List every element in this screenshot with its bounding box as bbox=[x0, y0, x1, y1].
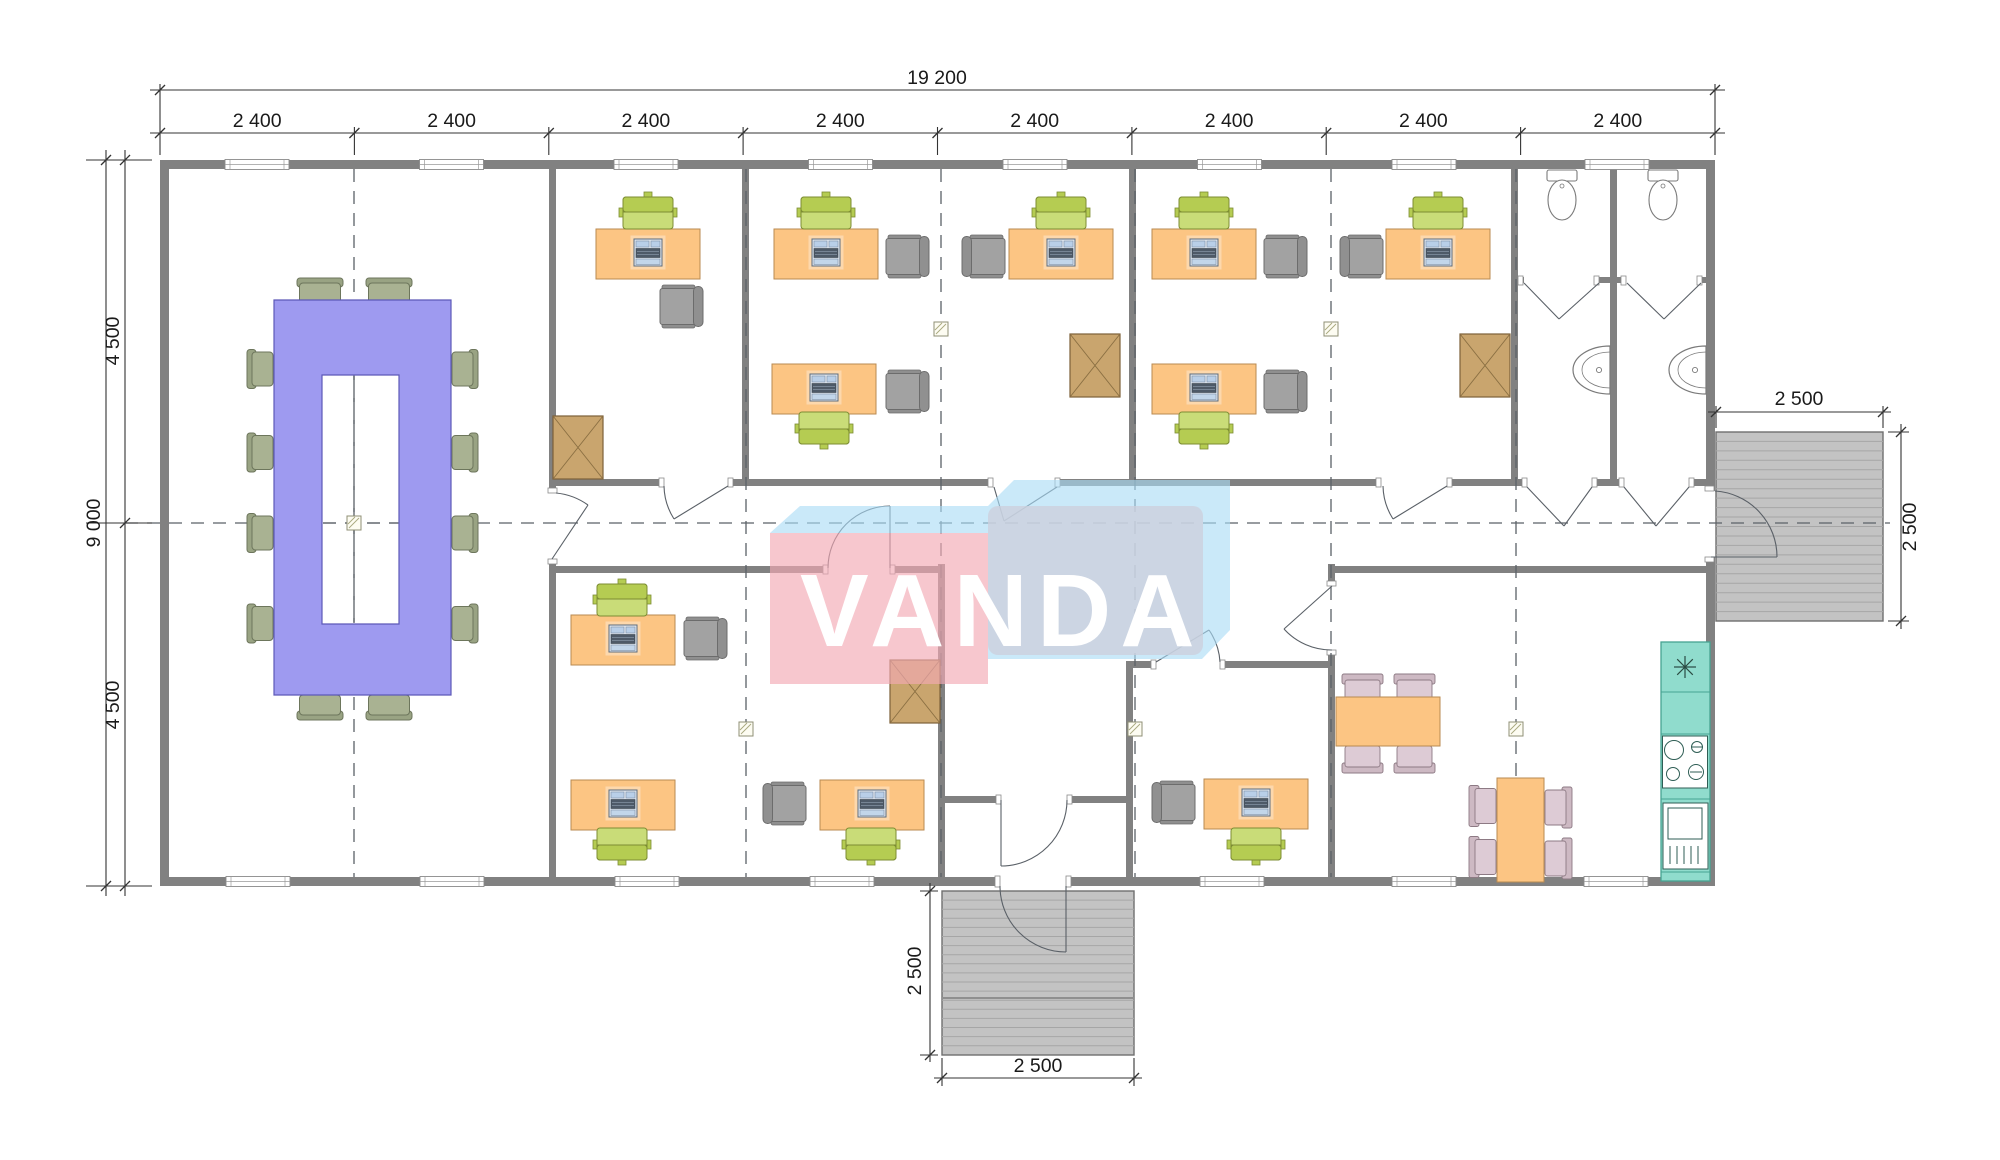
svg-text:2 400: 2 400 bbox=[1205, 110, 1254, 132]
svg-text:2 500: 2 500 bbox=[1899, 502, 1921, 551]
svg-text:2 400: 2 400 bbox=[1593, 110, 1642, 132]
svg-text:2 500: 2 500 bbox=[1775, 388, 1824, 410]
svg-text:2 400: 2 400 bbox=[1010, 110, 1059, 132]
svg-text:9 000: 9 000 bbox=[83, 498, 105, 547]
svg-text:VANDA: VANDA bbox=[800, 553, 1204, 668]
svg-text:4 500: 4 500 bbox=[102, 316, 124, 365]
svg-text:2 400: 2 400 bbox=[816, 110, 865, 132]
svg-text:4 500: 4 500 bbox=[102, 680, 124, 729]
svg-text:2 500: 2 500 bbox=[1014, 1055, 1063, 1077]
svg-text:2 500: 2 500 bbox=[904, 946, 926, 995]
svg-text:2 400: 2 400 bbox=[1399, 110, 1448, 132]
svg-text:19 200: 19 200 bbox=[907, 67, 967, 89]
svg-text:2 400: 2 400 bbox=[427, 110, 476, 132]
svg-text:2 400: 2 400 bbox=[621, 110, 670, 132]
svg-text:2 400: 2 400 bbox=[233, 110, 282, 132]
